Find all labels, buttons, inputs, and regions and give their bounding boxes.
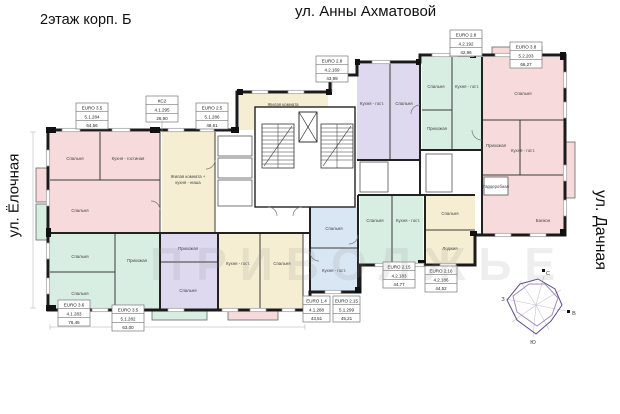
stamp-apartment-8: EURO 3.6 4.1.283 76,45 (58, 300, 90, 326)
room-label: Гардеробная (483, 184, 510, 189)
stamp-apartment-3: EURO 2.8 4.2.169 43,99 (316, 56, 348, 92)
svg-text:4.2.192: 4.2.192 (458, 41, 474, 46)
stamp-apartment-5: EURO 3.8 5.2.203 66,27 (510, 42, 542, 68)
svg-text:EURO 3.5: EURO 3.5 (118, 308, 139, 313)
svg-text:4.1.288: 4.1.288 (309, 307, 325, 312)
room-label: Спальня (71, 208, 89, 213)
svg-text:5.1.284: 5.1.284 (84, 114, 100, 119)
svg-text:5.1.299: 5.1.299 (339, 307, 355, 312)
svg-text:63,00: 63,00 (122, 325, 134, 330)
svg-text:64,56: 64,56 (86, 123, 98, 128)
room-label: Кухня - гост. (396, 218, 420, 223)
street-label-left: ул. Ёлочная (6, 116, 23, 276)
svg-text:76,45: 76,45 (68, 320, 80, 325)
stamp-apartment-2: EURO 2.5 5.1.286 48,61 (196, 103, 228, 129)
room-label: Жилая комната + (171, 174, 206, 179)
room-label: Прихожая (486, 143, 507, 148)
room-label: Спальня (427, 84, 445, 89)
street-label-top: ул. Анны Ахматовой (295, 3, 436, 20)
room-label: Спальня (71, 291, 89, 296)
svg-text:66,27: 66,27 (520, 62, 532, 67)
room-label: Кухня - гостиная (112, 156, 145, 161)
svg-text:43,99: 43,99 (326, 76, 338, 81)
svg-text:26,90: 26,90 (156, 116, 168, 121)
stamp-apartment-4: EURO 2.8 4.2.192 42,96 (450, 30, 482, 56)
room-label: Спальня (66, 156, 84, 161)
svg-text:4.1.295: 4.1.295 (154, 107, 170, 112)
room-label: Кухня - гост. (511, 148, 535, 153)
stamp-apartment-10: EURO 1.4 4.1.288 43,51 (303, 296, 330, 322)
east-marker (567, 310, 570, 313)
svg-text:EURO 3.8: EURO 3.8 (516, 45, 537, 50)
stamp-apartment-0: EURO 3.5 5.1.284 64,56 (76, 103, 108, 129)
svg-text:КС2: КС2 (158, 99, 167, 104)
room-label: Кухня - гост. (360, 101, 384, 106)
room-label: Спальня (366, 218, 384, 223)
room-label: кухня - ниша (175, 180, 201, 185)
room-label: Спальня (395, 101, 413, 106)
svg-text:5.1.282: 5.1.282 (120, 316, 136, 321)
svg-text:EURO 2.15: EURO 2.15 (335, 299, 359, 304)
svg-text:45,21: 45,21 (341, 316, 353, 321)
stamp-apartment-1: КС2 4.1.295 26,90 (146, 96, 178, 132)
svg-text:43,51: 43,51 (311, 316, 323, 321)
room-label: Спальня (325, 226, 343, 231)
svg-text:4.2.169: 4.2.169 (324, 67, 340, 72)
svg-text:EURO 3.6: EURO 3.6 (64, 303, 85, 308)
apartment-area-pink-tl (50, 132, 160, 233)
svg-text:EURO 3.5: EURO 3.5 (82, 106, 103, 111)
svg-text:42,96: 42,96 (460, 50, 472, 55)
svg-text:EURO 1.4: EURO 1.4 (306, 299, 327, 304)
compass-south-label: Ю (530, 340, 536, 346)
compass-east-label: В (572, 311, 576, 317)
stamp-apartment-11: EURO 2.15 5.1.299 45,21 (333, 296, 360, 322)
compass-west-label: З (501, 297, 505, 303)
svg-text:EURO 2.8: EURO 2.8 (322, 59, 343, 64)
room-label: Жилая комната (267, 102, 299, 107)
room-label: Спальня (71, 254, 89, 259)
svg-text:4.1.283: 4.1.283 (66, 311, 82, 316)
page-title: 2этаж корп. Б (40, 12, 131, 28)
stair-core (255, 107, 355, 207)
svg-text:5.2.203: 5.2.203 (518, 53, 534, 58)
floor-plan-svg: Спальня Кухня - гостиная Спальня Жилая к… (0, 0, 620, 414)
room-label: Кухня - гост. (455, 84, 479, 89)
room-label: Прихожая (127, 258, 148, 263)
svg-text:5.1.286: 5.1.286 (204, 114, 220, 119)
room-label: Спальня (441, 211, 459, 216)
street-label-right: ул. Дачная (591, 140, 609, 320)
stamp-apartment-9: EURO 3.5 5.1.282 63,00 (112, 305, 144, 331)
svg-text:48,61: 48,61 (206, 123, 218, 128)
floor-plan-screenshot: Спальня Кухня - гостиная Спальня Жилая к… (0, 0, 620, 414)
svg-text:EURO 2.8: EURO 2.8 (456, 33, 477, 38)
apartment-area-purple-tc (357, 64, 420, 160)
svg-text:EURO 2.5: EURO 2.5 (202, 106, 223, 111)
room-label: Прихожая (427, 126, 448, 131)
room-label: Балкон (536, 218, 551, 223)
room-label: Спальня (514, 91, 532, 96)
watermark-text: ПРИВОЛЖЬЕ (150, 238, 568, 290)
